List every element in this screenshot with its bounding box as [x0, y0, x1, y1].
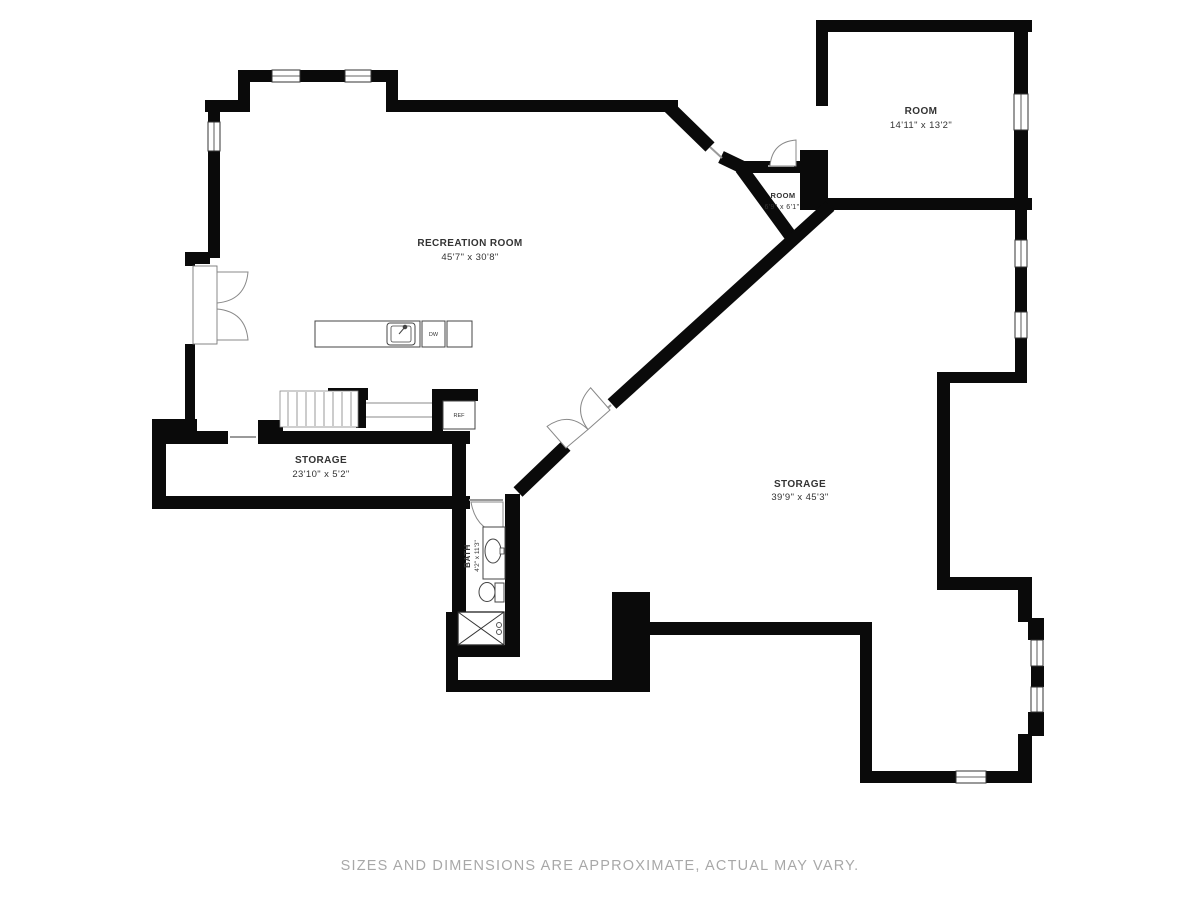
wall-segment	[432, 389, 443, 431]
wall-segment	[816, 20, 1032, 32]
wall-segment	[446, 680, 618, 692]
wall-segment	[860, 622, 872, 783]
disclaimer-text: SIZES AND DIMENSIONS ARE APPROXIMATE, AC…	[341, 858, 860, 874]
wall-segment	[800, 150, 828, 204]
stair-outline	[280, 391, 358, 427]
wall-segment	[152, 419, 166, 509]
cabinet	[447, 321, 472, 347]
room-label-storage-left: STORAGE	[295, 455, 347, 466]
room-dims-storage-right: 39'9" x 45'3"	[771, 492, 828, 503]
toilet-bowl	[479, 583, 495, 602]
wall-segment	[612, 206, 830, 404]
wall-segment	[166, 431, 228, 444]
room-dims-small: 6'9" x 6'1"	[764, 204, 799, 211]
door-swing	[770, 140, 796, 166]
wall-segment	[612, 592, 650, 692]
room-label-storage-right: STORAGE	[774, 479, 826, 490]
room-dims-bath: 4'2" x 11'3"	[474, 540, 481, 572]
french-door	[183, 266, 248, 344]
kitchen-island	[315, 321, 472, 347]
room-label-small: ROOM	[771, 191, 796, 200]
dishwasher-label: DW	[429, 332, 439, 338]
wall-segment	[938, 577, 1032, 590]
wall-segment	[1031, 666, 1044, 687]
room-label-bath: BATH	[463, 544, 472, 568]
wall-segment	[1015, 198, 1027, 383]
wall-segment	[258, 431, 470, 444]
wall-segment	[518, 446, 566, 492]
door-swing	[581, 388, 610, 430]
wall-segment	[446, 645, 520, 657]
wall-segment	[505, 494, 520, 657]
refrigerator: REF	[443, 401, 475, 429]
refrigerator-label: REF	[454, 413, 466, 419]
floor-plan-page: REF DW RECREATION ROOM 45'7" x 30'8" ROO…	[0, 0, 1200, 900]
room-dims-upper-right: 14'11" x 13'2"	[890, 120, 952, 131]
wall-segment	[668, 106, 710, 147]
room-dims-recreation: 45'7" x 30'8"	[441, 252, 498, 263]
door-swing	[217, 272, 248, 303]
staircase	[280, 391, 432, 427]
wall-segment	[937, 372, 950, 590]
room-dims-storage-left: 23'10" x 5'2"	[292, 469, 349, 480]
bath-fixtures	[479, 527, 505, 602]
mechanical-area	[458, 612, 504, 645]
door-swing	[217, 309, 248, 340]
wall-segment	[860, 771, 1032, 783]
wall-segment	[816, 20, 828, 106]
sink-oval	[485, 539, 501, 563]
room-label-recreation: RECREATION ROOM	[417, 238, 522, 249]
floor-plan: REF DW RECREATION ROOM 45'7" x 30'8" ROO…	[0, 0, 1200, 900]
door-landing	[193, 266, 217, 344]
wall-segment	[452, 432, 466, 612]
wall-segment	[938, 372, 1027, 383]
door-swings	[471, 140, 796, 534]
sink-basin	[391, 326, 411, 342]
door-threshold	[710, 147, 722, 158]
wall-segment	[152, 496, 470, 509]
door-swing	[547, 419, 588, 448]
wall-segment	[650, 622, 872, 635]
wall-segment	[386, 100, 678, 112]
wall-segment	[238, 70, 398, 82]
wall-segment	[1028, 618, 1044, 640]
toilet-tank	[495, 583, 504, 602]
wall-segment	[1018, 580, 1032, 622]
wall-segment	[1028, 712, 1044, 736]
room-label-upper-right: ROOM	[905, 106, 938, 117]
wall-segment	[721, 157, 744, 168]
wall-segment	[800, 198, 1032, 210]
faucet-icon	[500, 548, 504, 554]
